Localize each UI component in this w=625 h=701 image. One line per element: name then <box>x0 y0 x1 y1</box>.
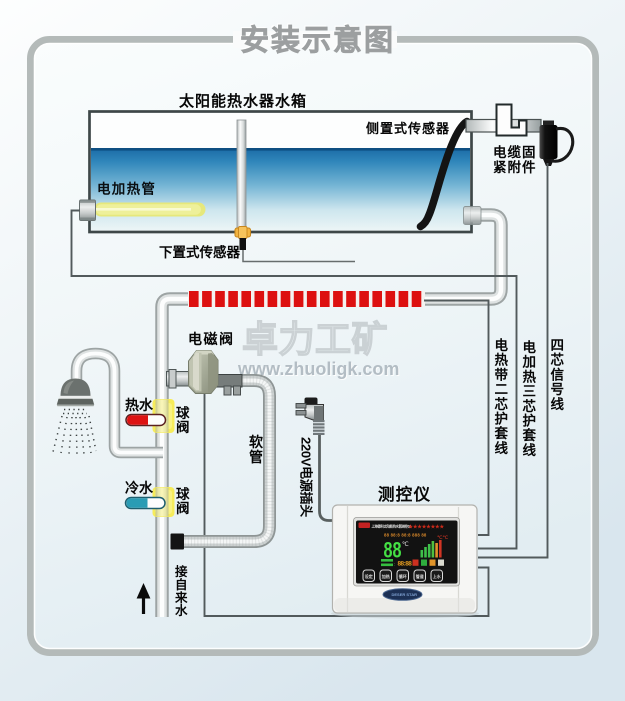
svg-text:芯: 芯 <box>523 398 537 414</box>
svg-text:电: 电 <box>495 337 509 353</box>
svg-text:线: 线 <box>551 396 565 412</box>
svg-text:套: 套 <box>495 425 509 441</box>
svg-text:220V电源插头: 220V电源插头 <box>299 437 314 517</box>
svg-text:℃℃: ℃℃ <box>437 535 449 541</box>
svg-text:信: 信 <box>551 366 565 382</box>
svg-text:太阳能热水器水箱: 太阳能热水器水箱 <box>179 92 307 110</box>
svg-text:带: 带 <box>495 367 509 382</box>
svg-text:阀: 阀 <box>176 419 190 435</box>
svg-text:设定: 设定 <box>365 573 373 579</box>
svg-text:卓力工矿: 卓力工矿 <box>242 319 388 360</box>
svg-text:芯: 芯 <box>495 396 509 412</box>
svg-text:电磁阀: 电磁阀 <box>188 331 235 347</box>
svg-text:阀: 阀 <box>176 500 190 516</box>
svg-text:电: 电 <box>523 339 537 355</box>
svg-text:管道: 管道 <box>416 573 424 579</box>
svg-text:芯: 芯 <box>551 352 565 368</box>
svg-text:热: 热 <box>523 368 537 384</box>
svg-text:线: 线 <box>495 440 509 456</box>
svg-text:DESER STAR: DESER STAR <box>392 592 418 597</box>
svg-text:球: 球 <box>176 405 190 421</box>
svg-text:套: 套 <box>523 427 537 443</box>
svg-text:电缆固: 电缆固 <box>493 144 537 160</box>
svg-text:上海德科太阳能热水器测控仪: 上海德科太阳能热水器测控仪 <box>372 524 412 529</box>
svg-text:℃: ℃ <box>402 542 409 548</box>
svg-text:加热: 加热 <box>381 573 390 579</box>
svg-text:三: 三 <box>523 384 537 399</box>
svg-text:上水: 上水 <box>433 573 442 579</box>
svg-text:来: 来 <box>174 590 188 605</box>
svg-text:加: 加 <box>522 355 537 370</box>
svg-text:球: 球 <box>176 486 190 502</box>
svg-text:线: 线 <box>523 442 537 458</box>
svg-text:二: 二 <box>495 382 509 397</box>
svg-text:88:88: 88:88 <box>398 561 413 568</box>
svg-text:测控仪: 测控仪 <box>378 484 431 504</box>
svg-text:紧附件: 紧附件 <box>493 159 537 175</box>
svg-text:安装示意图: 安装示意图 <box>240 23 395 57</box>
svg-text:循环: 循环 <box>399 573 407 579</box>
svg-text:冷水: 冷水 <box>125 480 154 496</box>
svg-text:下置式传感器: 下置式传感器 <box>159 244 240 260</box>
svg-text:88: 88 <box>384 538 402 563</box>
svg-text:号: 号 <box>551 382 565 397</box>
svg-text:管: 管 <box>249 449 263 465</box>
svg-text:热: 热 <box>495 352 509 368</box>
svg-text:电加热管: 电加热管 <box>97 181 156 197</box>
svg-text:接: 接 <box>175 564 188 579</box>
svg-text:侧置式传感器: 侧置式传感器 <box>366 121 450 136</box>
svg-text:四: 四 <box>551 338 565 353</box>
svg-text:护: 护 <box>523 413 537 429</box>
svg-text:软: 软 <box>249 434 264 450</box>
svg-text:热水: 热水 <box>125 397 154 413</box>
svg-text:★★★★★★★★: ★★★★★★★★ <box>408 524 444 531</box>
svg-text:自: 自 <box>175 577 188 592</box>
svg-text:水: 水 <box>175 603 188 618</box>
svg-text::: : <box>394 562 395 568</box>
svg-text:护: 护 <box>495 411 509 427</box>
